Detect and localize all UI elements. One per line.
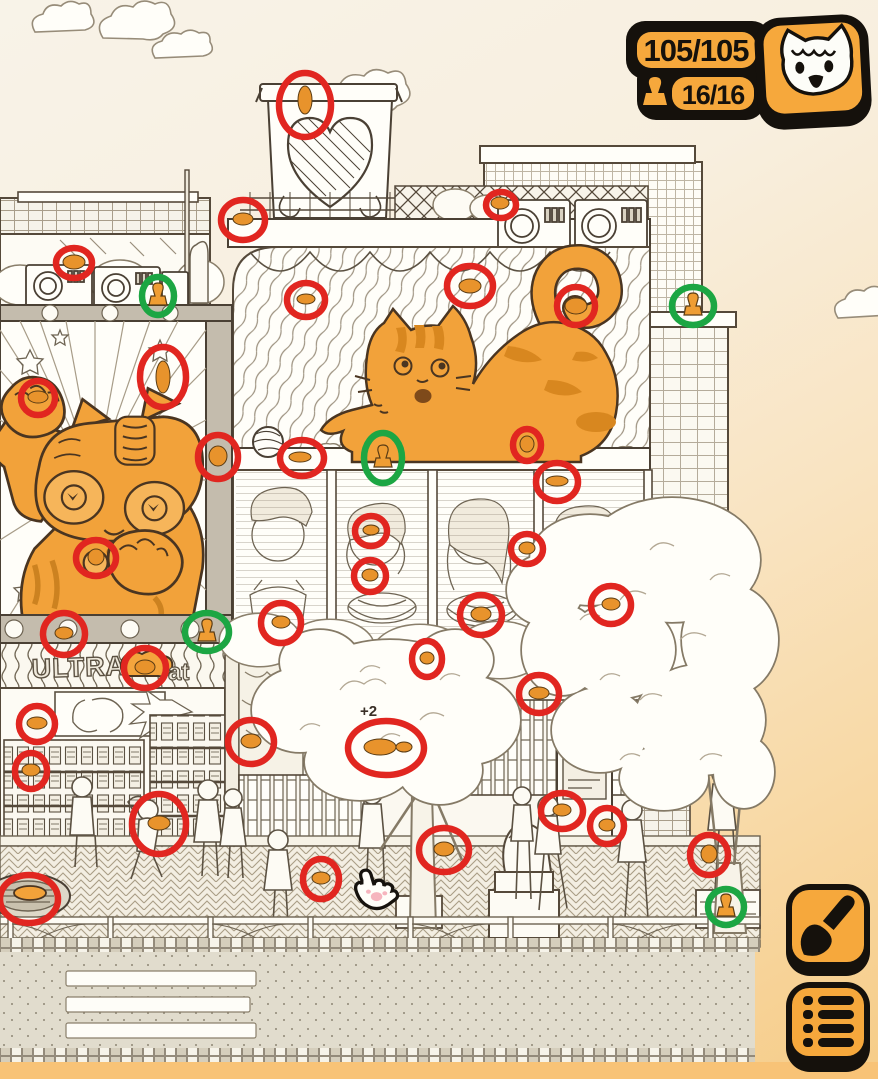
svg-text:105/105: 105/105 <box>643 33 749 68</box>
svg-text:+2: +2 <box>360 703 377 720</box>
svg-text:16/16: 16/16 <box>682 80 746 110</box>
svg-text:at: at <box>168 659 189 686</box>
svg-text:ULTRA: ULTRA <box>31 651 126 684</box>
